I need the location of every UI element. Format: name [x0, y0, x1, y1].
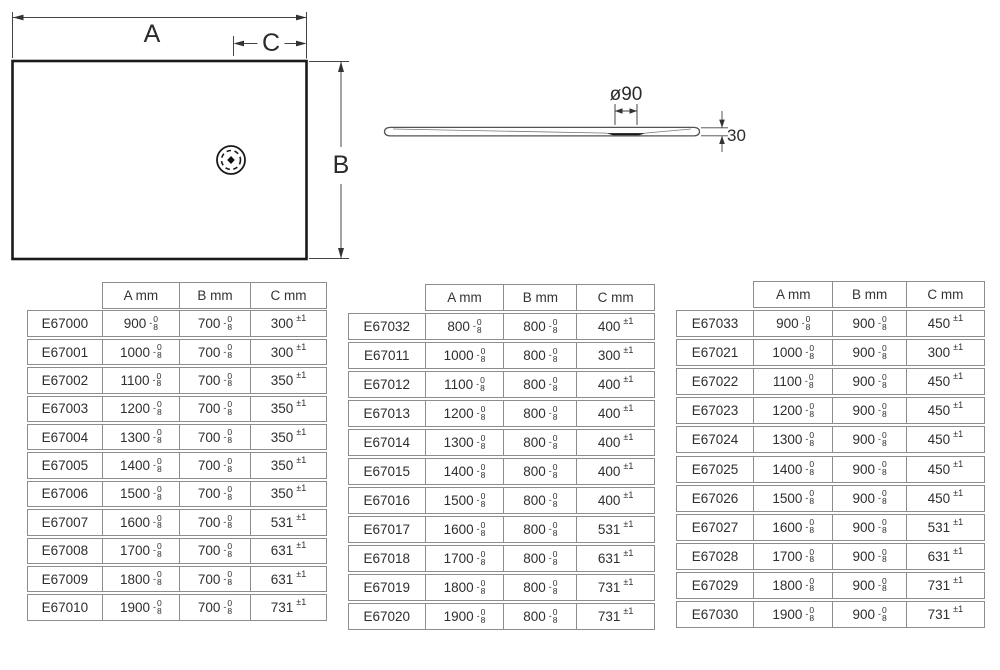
dim-b-cell: 700 -08 [179, 509, 251, 536]
table-row: E670191800 -08800 -08731 ±1 [348, 574, 658, 601]
dim-b-cell: 900 -08 [832, 339, 906, 366]
product-code-cell: E67004 [27, 424, 103, 451]
dim-b-cell: 700 -08 [179, 310, 251, 337]
dim-b-cell: 900 -08 [832, 572, 906, 599]
dim-a-cell: 1800 -08 [425, 574, 505, 601]
dim-b-cell: 900 -08 [832, 514, 906, 541]
dim-diameter-label: ø90 [610, 84, 643, 105]
product-code-cell: E67008 [27, 538, 103, 565]
tolerance-ab: -08 [223, 486, 232, 502]
dim-b-cell: 700 -08 [179, 594, 251, 621]
dim-c-cell: 531 ±1 [576, 516, 655, 543]
profile-view-drawing: ø90 30 [380, 0, 1000, 190]
tolerance-ab: -08 [153, 486, 162, 502]
tolerance-ab: -08 [153, 344, 162, 360]
product-code-cell: E67015 [348, 458, 426, 485]
dim-b-cell: 800 -08 [503, 487, 577, 514]
product-code-cell: E67010 [27, 594, 103, 621]
tolerance-ab: -08 [477, 551, 486, 567]
tolerance-c: ±1 [623, 491, 633, 500]
table-header-row: A mmB mmC mm [348, 284, 658, 311]
dim-c-cell: 400 ±1 [576, 371, 655, 398]
dim-b-cell: 900 -08 [832, 368, 906, 395]
tolerance-ab: -08 [549, 348, 558, 364]
tolerance-c: ±1 [623, 549, 633, 558]
dim-c-label: C [262, 29, 280, 57]
dim-c-cell: 350 ±1 [250, 396, 327, 423]
product-code-cell: E67027 [676, 514, 754, 541]
tolerance-c: ±1 [953, 401, 963, 410]
dim-b-cell: 900 -08 [832, 397, 906, 424]
tolerance-c: ±1 [296, 428, 306, 437]
table-row: E670131200 -08800 -08400 ±1 [348, 400, 658, 427]
tolerance-ab: -08 [878, 432, 887, 448]
dim-a-cell: 1500 -08 [425, 487, 505, 514]
table-row: E670261500 -08900 -08450 ±1 [676, 485, 988, 512]
table-row: E670161500 -08800 -08400 ±1 [348, 487, 658, 514]
dim-c-cell: 300 ±1 [250, 339, 327, 366]
tolerance-ab: -08 [549, 406, 558, 422]
dim-c-cell: 731 ±1 [576, 603, 655, 630]
table-row: E670211000 -08900 -08300 ±1 [676, 339, 988, 366]
tolerance-c: ±1 [953, 460, 963, 469]
dim-a-cell: 1300 -08 [102, 424, 180, 451]
tolerance-ab: -08 [878, 578, 887, 594]
dim-b-cell: 800 -08 [503, 574, 577, 601]
tolerance-ab: -08 [153, 515, 162, 531]
dimension-thickness [701, 111, 728, 152]
tolerance-ab: -08 [153, 401, 162, 417]
drain-symbol-icon [217, 146, 245, 174]
tolerance-ab: -08 [153, 543, 162, 559]
table-row: E670101900 -08700 -08731 ±1 [27, 594, 330, 621]
dim-a-cell: 900 -08 [102, 310, 180, 337]
tolerance-c: ±1 [623, 346, 633, 355]
dim-thickness-label: 30 [727, 126, 746, 145]
dim-c-cell: 731 ±1 [250, 594, 327, 621]
tolerance-ab: -08 [477, 580, 486, 596]
tolerance-ab: -08 [805, 403, 814, 419]
tolerance-c: ±1 [623, 462, 633, 471]
dim-b-label: B [333, 151, 350, 179]
table-row: E670231200 -08900 -08450 ±1 [676, 397, 988, 424]
dim-a-cell: 1600 -08 [102, 509, 180, 536]
tolerance-ab: -08 [549, 377, 558, 393]
drain-recess [606, 133, 646, 135]
header-cell: A mm [753, 281, 833, 308]
table-row: E670011000 -08700 -08300 ±1 [27, 339, 330, 366]
tolerance-c: ±1 [953, 372, 963, 381]
header-cell: A mm [102, 282, 180, 309]
tolerance-c: ±1 [296, 513, 306, 522]
dim-b-cell: 900 -08 [832, 485, 906, 512]
tolerance-ab: -08 [549, 493, 558, 509]
table-row: E670151400 -08800 -08400 ±1 [348, 458, 658, 485]
dim-a-cell: 1200 -08 [753, 397, 833, 424]
table-header-row: A mmB mmC mm [676, 281, 988, 308]
tolerance-c: ±1 [296, 456, 306, 465]
tolerance-c: ±1 [296, 570, 306, 579]
tolerance-ab: -08 [878, 316, 887, 332]
tolerance-ab: -08 [477, 609, 486, 625]
dim-c-cell: 631 ±1 [906, 543, 985, 570]
dim-b-cell: 900 -08 [832, 310, 906, 337]
product-code-cell: E67000 [27, 310, 103, 337]
dim-b-cell: 800 -08 [503, 545, 577, 572]
tolerance-c: ±1 [623, 375, 633, 384]
tolerance-c: ±1 [953, 343, 963, 352]
tolerance-ab: -08 [805, 461, 814, 477]
dim-b-cell: 900 -08 [832, 456, 906, 483]
product-code-cell: E67003 [27, 396, 103, 423]
tolerance-ab: -08 [878, 461, 887, 477]
tolerance-ab: -08 [878, 549, 887, 565]
dim-a-cell: 1900 -08 [753, 601, 833, 628]
dim-c-cell: 731 ±1 [906, 601, 985, 628]
dim-a-cell: 1400 -08 [102, 452, 180, 479]
product-code-cell: E67014 [348, 429, 426, 456]
tolerance-c: ±1 [953, 605, 963, 614]
table-row: E670071600 -08700 -08531 ±1 [27, 509, 330, 536]
tolerance-c: ±1 [623, 520, 633, 529]
product-code-cell: E67018 [348, 545, 426, 572]
table-row: E67033900 -08900 -08450 ±1 [676, 310, 988, 337]
tolerance-ab: -08 [805, 490, 814, 506]
tolerance-c: ±1 [296, 343, 306, 352]
dim-b-cell: 900 -08 [832, 601, 906, 628]
product-code-cell: E67009 [27, 566, 103, 593]
dim-a-cell: 1800 -08 [102, 566, 180, 593]
product-code-cell: E67032 [348, 313, 426, 340]
header-cell: B mm [179, 282, 251, 309]
tolerance-ab: -08 [805, 432, 814, 448]
dim-c-cell: 400 ±1 [576, 487, 655, 514]
tolerance-ab: -08 [149, 316, 158, 332]
dim-a-cell: 1800 -08 [753, 572, 833, 599]
spec-table-depth-800: A mmB mmC mmE67032800 -08800 -08400 ±1E6… [348, 284, 658, 632]
table-row: E670091800 -08700 -08631 ±1 [27, 566, 330, 593]
dim-c-cell: 631 ±1 [250, 538, 327, 565]
table-row: E670021100 -08700 -08350 ±1 [27, 367, 330, 394]
header-cell: C mm [906, 281, 985, 308]
tolerance-ab: -08 [805, 374, 814, 390]
table-row: E670181700 -08800 -08631 ±1 [348, 545, 658, 572]
header-blank-cell [676, 281, 754, 308]
tolerance-ab: -08 [549, 319, 558, 335]
product-code-cell: E67033 [676, 310, 754, 337]
header-cell: B mm [503, 284, 577, 311]
tolerance-ab: -08 [153, 600, 162, 616]
tolerance-ab: -08 [549, 435, 558, 451]
dim-c-cell: 631 ±1 [576, 545, 655, 572]
table-row: E670221100 -08900 -08450 ±1 [676, 368, 988, 395]
product-code-cell: E67021 [676, 339, 754, 366]
dim-a-cell: 1100 -08 [425, 371, 505, 398]
dim-a-cell: 1200 -08 [425, 400, 505, 427]
dim-a-cell: 1700 -08 [102, 538, 180, 565]
tolerance-ab: -08 [805, 345, 814, 361]
tolerance-c: ±1 [296, 598, 306, 607]
dim-c-cell: 350 ±1 [250, 452, 327, 479]
dim-b-cell: 700 -08 [179, 481, 251, 508]
tolerance-c: ±1 [623, 607, 633, 616]
tolerance-c: ±1 [953, 518, 963, 527]
product-code-cell: E67002 [27, 367, 103, 394]
tray-profile [385, 127, 700, 135]
tolerance-ab: -08 [152, 373, 161, 389]
table-row: E67032800 -08800 -08400 ±1 [348, 313, 658, 340]
product-code-cell: E67028 [676, 543, 754, 570]
tolerance-c: ±1 [296, 541, 306, 550]
dim-b-cell: 700 -08 [179, 538, 251, 565]
tolerance-ab: -08 [805, 578, 814, 594]
tolerance-c: ±1 [623, 317, 633, 326]
dim-c-cell: 450 ±1 [906, 368, 985, 395]
tolerance-ab: -08 [477, 493, 486, 509]
tolerance-ab: -08 [153, 429, 162, 445]
dim-c-cell: 400 ±1 [576, 458, 655, 485]
dim-c-cell: 350 ±1 [250, 481, 327, 508]
dim-a-cell: 1400 -08 [753, 456, 833, 483]
product-code-cell: E67019 [348, 574, 426, 601]
product-code-cell: E67026 [676, 485, 754, 512]
tolerance-ab: -08 [878, 519, 887, 535]
dim-b-cell: 900 -08 [832, 543, 906, 570]
spec-table-depth-700: A mmB mmC mmE67000900 -08700 -08300 ±1E6… [27, 282, 330, 623]
dim-b-cell: 700 -08 [179, 367, 251, 394]
tolerance-ab: -08 [549, 580, 558, 596]
tolerance-ab: -08 [805, 519, 814, 535]
product-code-cell: E67029 [676, 572, 754, 599]
dim-c-cell: 450 ±1 [906, 485, 985, 512]
table-row: E670051400 -08700 -08350 ±1 [27, 452, 330, 479]
product-code-cell: E67001 [27, 339, 103, 366]
tolerance-ab: -08 [223, 344, 232, 360]
product-code-cell: E67030 [676, 601, 754, 628]
dim-b-cell: 800 -08 [503, 516, 577, 543]
dim-c-cell: 731 ±1 [576, 574, 655, 601]
dim-b-cell: 700 -08 [179, 339, 251, 366]
tolerance-ab: -08 [223, 373, 232, 389]
table-row: E670201900 -08800 -08731 ±1 [348, 603, 658, 630]
dim-c-cell: 631 ±1 [250, 566, 327, 593]
dim-c-cell: 350 ±1 [250, 424, 327, 451]
table-row: E670141300 -08800 -08400 ±1 [348, 429, 658, 456]
dim-c-cell: 450 ±1 [906, 456, 985, 483]
dim-c-cell: 450 ±1 [906, 310, 985, 337]
dim-a-cell: 1400 -08 [425, 458, 505, 485]
tolerance-c: ±1 [953, 576, 963, 585]
table-row: E670301900 -08900 -08731 ±1 [676, 601, 988, 628]
product-code-cell: E67011 [348, 342, 426, 369]
dim-c-cell: 350 ±1 [250, 367, 327, 394]
table-row: E670251400 -08900 -08450 ±1 [676, 456, 988, 483]
product-code-cell: E67006 [27, 481, 103, 508]
table-row: E670121100 -08800 -08400 ±1 [348, 371, 658, 398]
tolerance-ab: -08 [476, 377, 485, 393]
dim-a-cell: 800 -08 [425, 313, 505, 340]
tolerance-ab: -08 [878, 403, 887, 419]
table-header-row: A mmB mmC mm [27, 282, 330, 309]
tolerance-ab: -08 [153, 458, 162, 474]
dim-a-cell: 1900 -08 [102, 594, 180, 621]
dim-b-cell: 800 -08 [503, 313, 577, 340]
tolerance-ab: -08 [878, 607, 887, 623]
tolerance-c: ±1 [953, 489, 963, 498]
tolerance-ab: -08 [223, 429, 232, 445]
tolerance-c: ±1 [623, 404, 633, 413]
tolerance-c: ±1 [296, 399, 306, 408]
tolerance-c: ±1 [296, 484, 306, 493]
dim-b-cell: 700 -08 [179, 566, 251, 593]
table-row: E670291800 -08900 -08731 ±1 [676, 572, 988, 599]
dim-a-label: A [144, 20, 161, 48]
header-blank-cell [27, 282, 103, 309]
dim-b-cell: 800 -08 [503, 429, 577, 456]
header-blank-cell [348, 284, 426, 311]
tray-outline [13, 61, 307, 259]
dim-a-cell: 1300 -08 [753, 426, 833, 453]
product-code-cell: E67025 [676, 456, 754, 483]
table-row: E670171600 -08800 -08531 ±1 [348, 516, 658, 543]
dim-b-cell: 700 -08 [179, 452, 251, 479]
table-row: E67000900 -08700 -08300 ±1 [27, 310, 330, 337]
product-code-cell: E67020 [348, 603, 426, 630]
table-row: E670081700 -08700 -08631 ±1 [27, 538, 330, 565]
tolerance-ab: -08 [477, 348, 486, 364]
product-code-cell: E67012 [348, 371, 426, 398]
dim-c-cell: 450 ±1 [906, 397, 985, 424]
dim-b-cell: 800 -08 [503, 458, 577, 485]
dim-a-cell: 1500 -08 [753, 485, 833, 512]
tolerance-c: ±1 [953, 547, 963, 556]
spec-sheet-page: A C B [0, 0, 1000, 670]
tolerance-ab: -08 [223, 458, 232, 474]
product-code-cell: E67024 [676, 426, 754, 453]
tolerance-ab: -08 [223, 515, 232, 531]
tolerance-ab: -08 [153, 571, 162, 587]
tolerance-ab: -08 [477, 522, 486, 538]
header-cell: A mm [425, 284, 505, 311]
tolerance-c: ±1 [296, 371, 306, 380]
table-row: E670061500 -08700 -08350 ±1 [27, 481, 330, 508]
tolerance-c: ±1 [623, 433, 633, 442]
dim-c-cell: 531 ±1 [906, 514, 985, 541]
tolerance-ab: -08 [223, 600, 232, 616]
dim-b-cell: 800 -08 [503, 371, 577, 398]
header-cell: C mm [250, 282, 327, 309]
dim-c-cell: 531 ±1 [250, 509, 327, 536]
dim-a-cell: 1300 -08 [425, 429, 505, 456]
dim-b-cell: 900 -08 [832, 426, 906, 453]
tolerance-ab: -08 [549, 464, 558, 480]
tolerance-ab: -08 [223, 401, 232, 417]
dim-c-cell: 400 ±1 [576, 400, 655, 427]
dim-a-cell: 1600 -08 [425, 516, 505, 543]
tolerance-c: ±1 [623, 578, 633, 587]
tolerance-ab: -08 [878, 490, 887, 506]
tolerance-ab: -08 [223, 543, 232, 559]
dim-a-cell: 1700 -08 [425, 545, 505, 572]
tolerance-ab: -08 [477, 435, 486, 451]
header-cell: B mm [832, 281, 906, 308]
table-row: E670271600 -08900 -08531 ±1 [676, 514, 988, 541]
dim-a-cell: 1000 -08 [425, 342, 505, 369]
dim-a-cell: 1100 -08 [102, 367, 180, 394]
dim-c-cell: 300 ±1 [906, 339, 985, 366]
product-code-cell: E67007 [27, 509, 103, 536]
tolerance-c: ±1 [296, 314, 306, 323]
product-code-cell: E67023 [676, 397, 754, 424]
dim-c-cell: 400 ±1 [576, 429, 655, 456]
tolerance-c: ±1 [953, 314, 963, 323]
product-code-cell: E67013 [348, 400, 426, 427]
product-code-cell: E67017 [348, 516, 426, 543]
tolerance-ab: -08 [549, 609, 558, 625]
dimension-diameter [615, 104, 637, 125]
dim-a-cell: 1000 -08 [753, 339, 833, 366]
dim-b-cell: 700 -08 [179, 424, 251, 451]
tolerance-ab: -08 [477, 406, 486, 422]
tolerance-ab: -08 [549, 551, 558, 567]
tolerance-ab: -08 [878, 345, 887, 361]
product-code-cell: E67005 [27, 452, 103, 479]
dim-b-cell: 700 -08 [179, 396, 251, 423]
dim-c-cell: 300 ±1 [576, 342, 655, 369]
product-code-cell: E67022 [676, 368, 754, 395]
table-row: E670241300 -08900 -08450 ±1 [676, 426, 988, 453]
header-cell: C mm [576, 284, 655, 311]
tolerance-ab: -08 [223, 316, 232, 332]
tolerance-c: ±1 [953, 430, 963, 439]
plan-view-drawing: A C B [0, 0, 360, 275]
dim-a-cell: 1200 -08 [102, 396, 180, 423]
dim-a-cell: 1500 -08 [102, 481, 180, 508]
dim-b-cell: 800 -08 [503, 400, 577, 427]
dim-c-cell: 731 ±1 [906, 572, 985, 599]
tolerance-ab: -08 [805, 607, 814, 623]
dim-a-cell: 1600 -08 [753, 514, 833, 541]
dim-a-cell: 900 -08 [753, 310, 833, 337]
tolerance-ab: -08 [477, 464, 486, 480]
dim-c-cell: 450 ±1 [906, 426, 985, 453]
table-row: E670031200 -08700 -08350 ±1 [27, 396, 330, 423]
table-row: E670041300 -08700 -08350 ±1 [27, 424, 330, 451]
dim-c-cell: 300 ±1 [250, 310, 327, 337]
dim-a-cell: 1900 -08 [425, 603, 505, 630]
dim-b-cell: 800 -08 [503, 603, 577, 630]
dim-a-cell: 1000 -08 [102, 339, 180, 366]
table-row: E670281700 -08900 -08631 ±1 [676, 543, 988, 570]
tolerance-ab: -08 [473, 319, 482, 335]
dim-c-cell: 400 ±1 [576, 313, 655, 340]
tolerance-ab: -08 [878, 374, 887, 390]
tolerance-ab: -08 [805, 549, 814, 565]
dim-a-cell: 1700 -08 [753, 543, 833, 570]
dim-b-cell: 800 -08 [503, 342, 577, 369]
tolerance-ab: -08 [223, 571, 232, 587]
tolerance-ab: -08 [549, 522, 558, 538]
dim-a-cell: 1100 -08 [753, 368, 833, 395]
tolerance-ab: -08 [802, 316, 811, 332]
table-row: E670111000 -08800 -08300 ±1 [348, 342, 658, 369]
spec-table-depth-900: A mmB mmC mmE67033900 -08900 -08450 ±1E6… [676, 281, 988, 630]
product-code-cell: E67016 [348, 487, 426, 514]
